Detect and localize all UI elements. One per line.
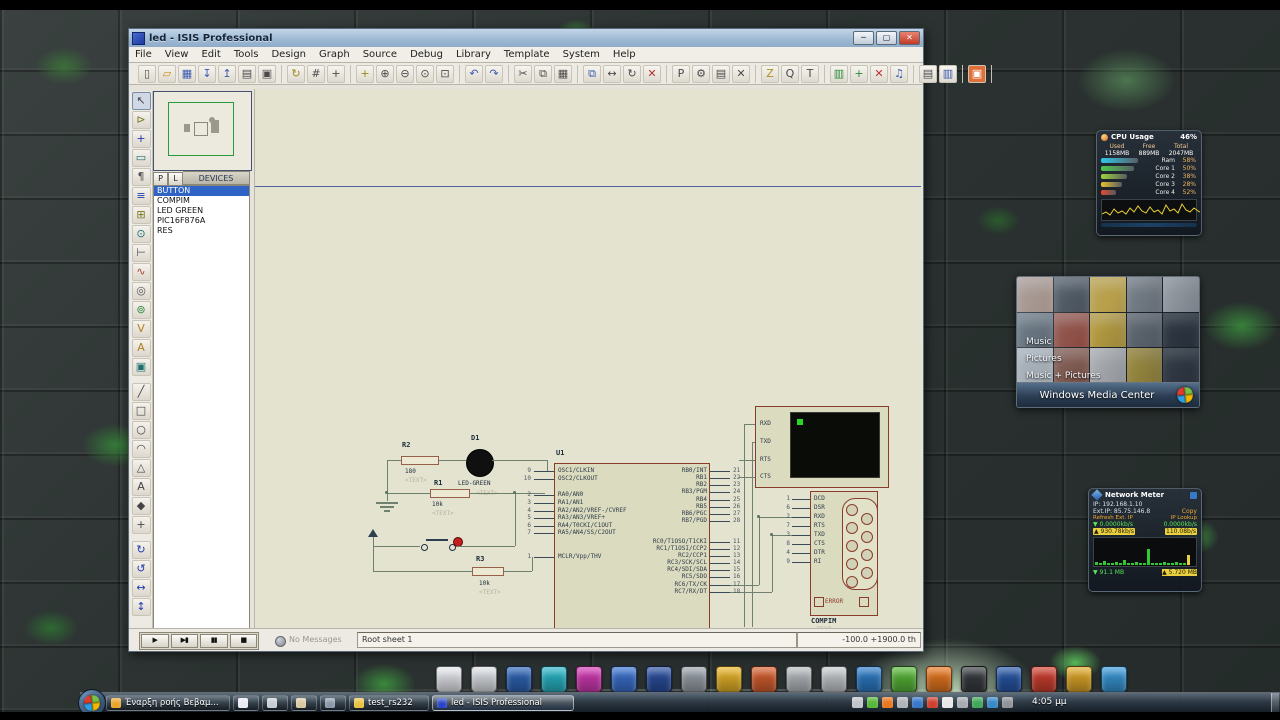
toolbar-group: +⊕⊖⊙⊡ [351, 65, 460, 83]
toolbar-group: ▯▱▦↧↥▤▣ [133, 65, 282, 83]
traffic-bar [1159, 563, 1162, 565]
tray-icon[interactable] [957, 697, 968, 708]
toolbar-group: ▣ [963, 65, 992, 83]
compim-pin [792, 544, 810, 545]
component-text: <TEXT> [432, 510, 454, 517]
resistor-r2[interactable] [401, 456, 439, 465]
media-menu-pictures[interactable]: Pictures [1026, 354, 1062, 364]
cpu-row-percent: 28% [1183, 181, 1196, 188]
chip-pin [710, 563, 730, 564]
media-menu-music-pictures[interactable]: Music + Pictures [1026, 371, 1101, 381]
traffic-bar [1115, 562, 1118, 565]
zoom-area-icon[interactable]: ⊡ [436, 65, 454, 83]
maximize-button[interactable]: ▢ [876, 31, 897, 45]
pin-number: 2 [774, 513, 790, 520]
traffic-bar [1095, 562, 1098, 565]
toolbar-group: ↶↷ [460, 65, 509, 83]
zoom-in-icon[interactable]: ⊕ [376, 65, 394, 83]
pin-number: 5 [505, 514, 531, 521]
terminal-cursor [797, 419, 803, 425]
dock-icon[interactable] [681, 666, 707, 692]
dock-icon[interactable] [541, 666, 567, 692]
export-icon[interactable]: ↥ [218, 65, 236, 83]
compim-pin [792, 553, 810, 554]
play-button[interactable]: ▶ [141, 634, 169, 648]
led-d1[interactable] [466, 449, 494, 477]
cpu-column-header: Free [1133, 143, 1165, 150]
cpu-row-label: Core 2 [1155, 173, 1175, 180]
task-button-label: led - ISIS Professional [451, 698, 542, 708]
chip-pin [534, 511, 554, 512]
menu-tools[interactable]: Tools [234, 49, 259, 60]
cpu-gadget-icon [1101, 134, 1108, 141]
minimap-thumb-shape [184, 124, 190, 132]
traffic-bar [1187, 555, 1190, 565]
pin-number: 9 [774, 558, 790, 565]
wire [457, 546, 515, 547]
ground-symbol [384, 510, 390, 512]
cpu-usage-bar [1101, 182, 1122, 187]
pin-number: 23 [733, 481, 740, 488]
save-file-icon[interactable]: ▦ [178, 65, 196, 83]
pin-number: 4 [505, 507, 531, 514]
network-up-row: ▲ 930.78kb/s 110.08b/s [1089, 528, 1201, 535]
terminal-pin-name: CTS [760, 473, 771, 480]
rotate-cw-icon[interactable]: ↻ [132, 541, 151, 559]
dock-icon[interactable] [436, 666, 462, 692]
compim-pin [792, 508, 810, 509]
pin-number: 15 [733, 566, 740, 573]
mark-area-icon[interactable]: ▣ [258, 65, 276, 83]
menu-source[interactable]: Source [363, 49, 397, 60]
traffic-bar [1147, 549, 1150, 565]
cpu-usage-row: Core 238% [1101, 173, 1197, 181]
mirror-h-icon[interactable]: ↔ [132, 579, 151, 597]
tray-icon[interactable] [897, 697, 908, 708]
stop-button[interactable]: ■ [230, 634, 258, 648]
pin-name: RC4/SDI/SDA [559, 566, 707, 573]
component-ref: R2 [402, 441, 410, 449]
cpu-row-percent: 58% [1183, 157, 1196, 164]
cpu-row-label: Core 4 [1155, 189, 1175, 196]
minimap-thumb-shape [194, 122, 208, 136]
2d-arc-icon[interactable]: ◠ [132, 440, 151, 458]
dock-icon[interactable] [1066, 666, 1092, 692]
task-button-icon [111, 698, 121, 708]
network-total-up: ▲ 5.720 MB [1162, 569, 1197, 576]
task-button-icon [238, 698, 248, 708]
task-button[interactable] [291, 695, 317, 711]
show-desktop-button[interactable] [1271, 693, 1279, 713]
db9-pin-hole [846, 522, 858, 534]
cpu-column-value: 889MB [1133, 150, 1165, 157]
toolbar-group: ⧉↔↻✕ [578, 65, 667, 83]
print-icon[interactable]: ▤ [238, 65, 256, 83]
minimize-button[interactable]: ─ [853, 31, 874, 45]
traffic-bar [1131, 563, 1134, 565]
task-button-label: Έναρξη ροής Βεβαμ... [125, 698, 219, 708]
pin-number: 21 [733, 467, 740, 474]
dock-icon[interactable] [576, 666, 602, 692]
zoom-all-icon[interactable]: ⊙ [416, 65, 434, 83]
menu-library[interactable]: Library [456, 49, 491, 60]
pick-device-icon[interactable]: P [672, 65, 690, 83]
pin-name: RC6/TX/CK [559, 581, 707, 588]
media-menu-music[interactable]: Music [1026, 337, 1052, 347]
block-delete-icon[interactable]: ✕ [643, 65, 661, 83]
goto-sheet-icon[interactable]: ♫ [890, 65, 908, 83]
dock-icon[interactable] [471, 666, 497, 692]
pin-name: RC1/T1OSI/CCP2 [559, 545, 707, 552]
pin-number: 27 [733, 510, 740, 517]
pin-number: 13 [733, 552, 740, 559]
dock-icon[interactable] [1101, 666, 1127, 692]
task-button[interactable] [233, 695, 259, 711]
traffic-bar [1171, 563, 1174, 565]
dock-icon[interactable] [1031, 666, 1057, 692]
traffic-bar [1155, 563, 1158, 565]
pause-button[interactable]: ▮▮ [200, 634, 228, 648]
bom-icon[interactable]: ▤ [919, 65, 937, 83]
traffic-bar [1099, 563, 1102, 565]
2d-symbol-icon[interactable]: ◆ [132, 497, 151, 515]
cpu-usage-gadget[interactable]: CPU Usage 46% UsedFreeTotal1158MB889MB20… [1096, 130, 1202, 236]
chip-pin [534, 503, 554, 504]
traffic-bar [1179, 563, 1182, 565]
undo-icon[interactable]: ↶ [465, 65, 483, 83]
device-item-res[interactable]: RES [154, 226, 249, 236]
chip-pin [710, 577, 730, 578]
windows-flag-icon [83, 694, 101, 712]
db9-pin-hole [846, 576, 858, 588]
resistor-r3[interactable] [472, 567, 504, 576]
app-icon [132, 32, 145, 45]
redo-icon[interactable]: ↷ [485, 65, 503, 83]
property-tool-icon[interactable]: T [801, 65, 819, 83]
decompose-icon[interactable]: ✕ [732, 65, 750, 83]
rotate-ccw-icon[interactable]: ↺ [132, 560, 151, 578]
tray-icon[interactable] [852, 697, 863, 708]
dock-icon[interactable] [821, 666, 847, 692]
packaging-icon[interactable]: ▤ [712, 65, 730, 83]
device-item-compim[interactable]: COMPIM [154, 196, 249, 206]
windows-flag-icon [1176, 386, 1194, 404]
chip-pin [710, 500, 730, 501]
tray-icon[interactable] [972, 697, 983, 708]
chip-pin [710, 549, 730, 550]
device-item-led-green[interactable]: LED GREEN [154, 206, 249, 216]
network-gadget-menu-icon[interactable] [1190, 492, 1197, 499]
pin-number: 16 [733, 573, 740, 580]
simulation-controls: ▶▶▮▮▮■ [139, 632, 259, 650]
task-button[interactable] [320, 695, 346, 711]
pan-icon[interactable]: + [356, 65, 374, 83]
component-mode-icon[interactable]: ⊳ [132, 111, 151, 129]
menu-bar: FileViewEditToolsDesignGraphSourceDebugL… [129, 47, 923, 63]
wire [373, 571, 472, 572]
virtual-instrument-icon[interactable]: ▣ [132, 358, 151, 376]
resistor-r1[interactable] [430, 489, 470, 498]
2d-line-icon[interactable]: ╱ [132, 383, 151, 401]
task-button-icon [325, 698, 335, 708]
menu-system[interactable]: System [563, 49, 600, 60]
remove-sheet-icon[interactable]: ✕ [870, 65, 888, 83]
close-button[interactable]: ✕ [899, 31, 920, 45]
component-ref: R3 [476, 555, 484, 563]
pin-number: 25 [733, 496, 740, 503]
ground-symbol [380, 506, 394, 508]
dock-icon[interactable] [646, 666, 672, 692]
tray-icon[interactable] [987, 697, 998, 708]
tool-separator [130, 377, 152, 382]
task-button-icon [437, 698, 447, 708]
compim-pin [792, 562, 810, 563]
device-list: BUTTONCOMPIMLED GREENPIC16F876ARES [153, 185, 250, 629]
chip-pin [534, 518, 554, 519]
search-tag-icon[interactable]: Q [781, 65, 799, 83]
wire [492, 460, 547, 461]
dock-icon[interactable] [961, 666, 987, 692]
netlist-transfer-icon[interactable]: ▣ [968, 65, 986, 83]
tape-recorder-icon[interactable]: ◎ [132, 282, 151, 300]
cpu-usage-row: Ram58% [1101, 157, 1197, 165]
wire [504, 571, 532, 572]
block-copy-icon[interactable]: ⧉ [583, 65, 601, 83]
graph-mode-icon[interactable]: ∿ [132, 263, 151, 281]
2d-box-icon[interactable]: □ [132, 402, 151, 420]
import-icon[interactable]: ↧ [198, 65, 216, 83]
traffic-bar [1107, 563, 1110, 565]
pin-name: RB5 [559, 503, 707, 510]
selection-pointer-icon[interactable]: ↖ [132, 92, 151, 110]
tool-palette: ↖⊳+▭¶≡⊞⊙⊢∿◎⊚VA▣╱□○◠△A◆+↻↺↔↕ [130, 91, 153, 629]
db9-pin-hole [846, 540, 858, 552]
tray-icon[interactable] [912, 697, 923, 708]
copy-icon[interactable]: ⧉ [534, 65, 552, 83]
block-move-icon[interactable]: ↔ [603, 65, 621, 83]
tray-icon[interactable] [927, 697, 938, 708]
origin-icon[interactable]: + [327, 65, 345, 83]
network-total-down: ▼ 91.1 MB [1093, 569, 1124, 576]
menu-help[interactable]: Help [613, 49, 636, 60]
compim-indicator [814, 597, 824, 607]
device-item-button[interactable]: BUTTON [154, 186, 249, 196]
task-button-icon [267, 698, 277, 708]
traffic-bar [1123, 560, 1126, 565]
cpu-row-percent: 50% [1183, 165, 1196, 172]
dock-icon[interactable] [611, 666, 637, 692]
pin-number: 11 [733, 538, 740, 545]
device-item-pic16f876a[interactable]: PIC16F876A [154, 216, 249, 226]
open-file-icon[interactable]: ▱ [158, 65, 176, 83]
dock-icon[interactable] [716, 666, 742, 692]
toolbar-group: ✂⧉▦ [509, 65, 578, 83]
pin-name: RB0/INT [559, 467, 707, 474]
dock-icon[interactable] [786, 666, 812, 692]
overview-minimap[interactable] [153, 91, 252, 171]
2d-circle-icon[interactable]: ○ [132, 421, 151, 439]
chip-pin [710, 521, 730, 522]
new-sheet-icon[interactable]: + [850, 65, 868, 83]
cpu-column-header: Total [1165, 143, 1197, 150]
block-rotate-icon[interactable]: ↻ [623, 65, 641, 83]
db9-pin-hole [861, 513, 873, 525]
component-ref: D1 [471, 434, 479, 442]
button-bar [426, 539, 448, 541]
step-button[interactable]: ▶▮ [171, 634, 199, 648]
chip-pin [534, 479, 554, 480]
window-controls: ─ ▢ ✕ [851, 31, 920, 45]
compim-indicator [859, 597, 869, 607]
grid-toggle-icon[interactable]: # [307, 65, 325, 83]
network-up-rate-2: 110.08b/s [1165, 528, 1197, 535]
component-ref: U1 [556, 449, 564, 457]
chip-pin [710, 592, 730, 593]
pin-number: 12 [733, 545, 740, 552]
junction-dot-icon[interactable]: + [132, 130, 151, 148]
taskbar-clock[interactable]: 4:05 μμ [1032, 697, 1067, 707]
tray-icon[interactable] [1002, 697, 1013, 708]
chip-pin [534, 533, 554, 534]
pin-name: TXD [814, 531, 825, 538]
library-manager-button[interactable]: L [168, 172, 183, 186]
tray-icon[interactable] [867, 697, 878, 708]
compim-pin [792, 499, 810, 500]
toolbar-group: P⚙▤✕ [667, 65, 756, 83]
network-traffic-graph [1093, 537, 1197, 567]
dock-icon[interactable] [926, 666, 952, 692]
task-button-led-isis-professional[interactable]: led - ISIS Professional [432, 695, 574, 711]
chip-pin [534, 471, 554, 472]
chip-pin [710, 556, 730, 557]
chip-pin [534, 526, 554, 527]
media-center-band: Windows Media Center [1017, 382, 1199, 407]
network-meter-gadget[interactable]: Network Meter IP: 192.168.1.10 Ext.IP: 8… [1088, 488, 1202, 592]
pin-name: RB1 [559, 474, 707, 481]
pin-name: RB6/PGC [559, 510, 707, 517]
cpu-usage-bar [1101, 190, 1116, 195]
compim-pin [792, 535, 810, 536]
make-device-icon[interactable]: ⚙ [692, 65, 710, 83]
dock-icon[interactable] [996, 666, 1022, 692]
task-button[interactable] [262, 695, 288, 711]
menu-file[interactable]: File [135, 49, 152, 60]
erc-icon[interactable]: ▥ [939, 65, 957, 83]
pin-number: 17 [733, 581, 740, 588]
2d-marker-icon[interactable]: + [132, 516, 151, 534]
subcircuit-icon[interactable]: ⊞ [132, 206, 151, 224]
devices-header: DEVICES [183, 171, 250, 185]
network-down-row: ▼ 0.0000kb/s 0.0000kb/s [1089, 521, 1201, 528]
network-ext-ip: Ext.IP: 85.75.146.8 [1093, 508, 1150, 515]
pick-devices-button[interactable]: P [153, 172, 168, 186]
menu-graph[interactable]: Graph [319, 49, 350, 60]
wire [439, 460, 466, 461]
wire [532, 557, 533, 571]
task-button-test-rs232[interactable]: test_rs232 [349, 695, 429, 711]
dock-icon[interactable] [506, 666, 532, 692]
dock-icon[interactable] [891, 666, 917, 692]
menu-template[interactable]: Template [504, 49, 550, 60]
mirror-v-icon[interactable]: ↕ [132, 598, 151, 616]
menu-debug[interactable]: Debug [410, 49, 443, 60]
component-ref: COMPIM [811, 617, 836, 625]
pin-number: 1 [774, 495, 790, 502]
2d-text-icon[interactable]: A [132, 478, 151, 496]
terminal-mode-icon[interactable]: ⊙ [132, 225, 151, 243]
media-glass-overlay [1017, 277, 1199, 383]
cpu-memory-table: UsedFreeTotal1158MB889MB2047MB [1097, 143, 1201, 157]
wire [373, 546, 420, 547]
menu-view[interactable]: View [165, 49, 189, 60]
design-explorer-icon[interactable]: ▥ [830, 65, 848, 83]
isis-window: led - ISIS Professional ─ ▢ ✕ FileViewEd… [128, 28, 924, 652]
cpu-usage-row: Core 452% [1101, 189, 1197, 197]
dock-icon[interactable] [856, 666, 882, 692]
chip-pin [534, 495, 554, 496]
wire-autorouter-icon[interactable]: Z [761, 65, 779, 83]
component-text: <TEXT> [479, 589, 501, 596]
generator-icon[interactable]: ⊚ [132, 301, 151, 319]
pin-number: 7 [774, 522, 790, 529]
network-ext-ip-row: Ext.IP: 85.75.146.8 Copy [1089, 508, 1201, 515]
wire [373, 537, 374, 571]
traffic-bar [1139, 563, 1142, 565]
menu-design[interactable]: Design [271, 49, 306, 60]
paste-icon[interactable]: ▦ [554, 65, 572, 83]
toolbar-group: ↻#+ [282, 65, 351, 83]
screen: CPU Usage 46% UsedFreeTotal1158MB889MB20… [0, 0, 1280, 720]
window-title: led - ISIS Professional [149, 33, 273, 44]
voltage-probe-icon[interactable]: V [132, 320, 151, 338]
pin-number: 2 [505, 491, 531, 498]
cpu-usage-row: Core 328% [1101, 181, 1197, 189]
network-down-rate: ▼ 0.0000kb/s [1093, 521, 1133, 528]
tray-icon[interactable] [882, 697, 893, 708]
pin-name: RA5/AN4/SS/C2OUT [558, 529, 616, 536]
title-bar[interactable]: led - ISIS Professional ─ ▢ ✕ [129, 29, 923, 48]
device-pin-icon[interactable]: ⊢ [132, 244, 151, 262]
pin-number: 10 [505, 475, 531, 482]
text-script-icon[interactable]: ¶ [132, 168, 151, 186]
refresh-icon[interactable]: ↻ [287, 65, 305, 83]
pin-number: 22 [733, 474, 740, 481]
tray-icon[interactable] [942, 697, 953, 708]
wire-label-icon[interactable]: ▭ [132, 149, 151, 167]
cut-icon[interactable]: ✂ [514, 65, 532, 83]
schematic-canvas[interactable]: ERROR R2 180 <TEXT> D1 R1 LED-GREEN <TEX… [254, 89, 921, 629]
zoom-out-icon[interactable]: ⊖ [396, 65, 414, 83]
new-file-icon[interactable]: ▯ [138, 65, 156, 83]
toolbar-group: ▥+✕♫ [825, 65, 914, 83]
media-center-title: Windows Media Center [1017, 390, 1177, 401]
2d-path-icon[interactable]: △ [132, 459, 151, 477]
pin-name: RC5/SDO [559, 573, 707, 580]
pin-name: RB4 [559, 496, 707, 503]
component-value: LED-GREEN [458, 480, 491, 487]
task-button--[interactable]: Έναρξη ροής Βεβαμ... [106, 695, 230, 711]
wire [744, 424, 745, 627]
dock-icon[interactable] [751, 666, 777, 692]
menu-edit[interactable]: Edit [201, 49, 220, 60]
network-copy-link[interactable]: Copy [1182, 508, 1197, 515]
bus-icon[interactable]: ≡ [132, 187, 151, 205]
cpu-total-usage: 46% [1180, 133, 1197, 141]
current-probe-icon[interactable]: A [132, 339, 151, 357]
pin-number: 6 [774, 504, 790, 511]
media-center-gadget[interactable]: Music Pictures Music + Pictures Windows … [1016, 276, 1200, 408]
pin-number: 3 [774, 531, 790, 538]
